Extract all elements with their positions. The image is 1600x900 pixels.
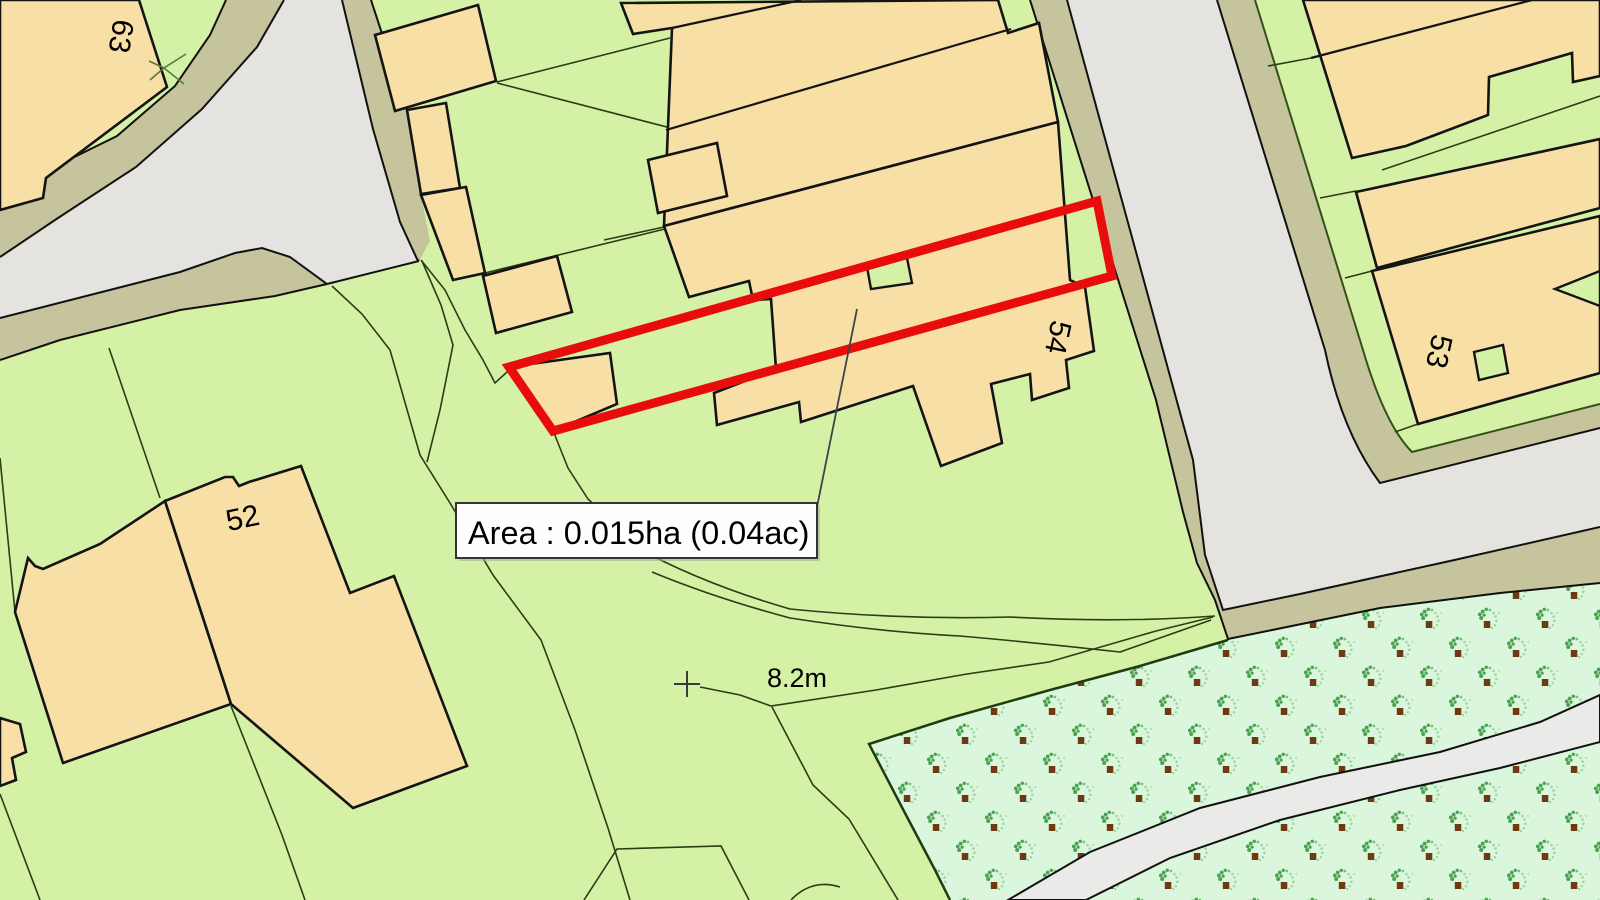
svg-text:54: 54 xyxy=(1038,318,1077,358)
svg-text:53: 53 xyxy=(1419,332,1458,372)
svg-text:8.2m: 8.2m xyxy=(767,663,827,693)
svg-text:52: 52 xyxy=(223,499,263,538)
svg-text:Area : 0.015ha (0.04ac): Area : 0.015ha (0.04ac) xyxy=(468,515,809,551)
svg-text:63: 63 xyxy=(102,17,140,55)
